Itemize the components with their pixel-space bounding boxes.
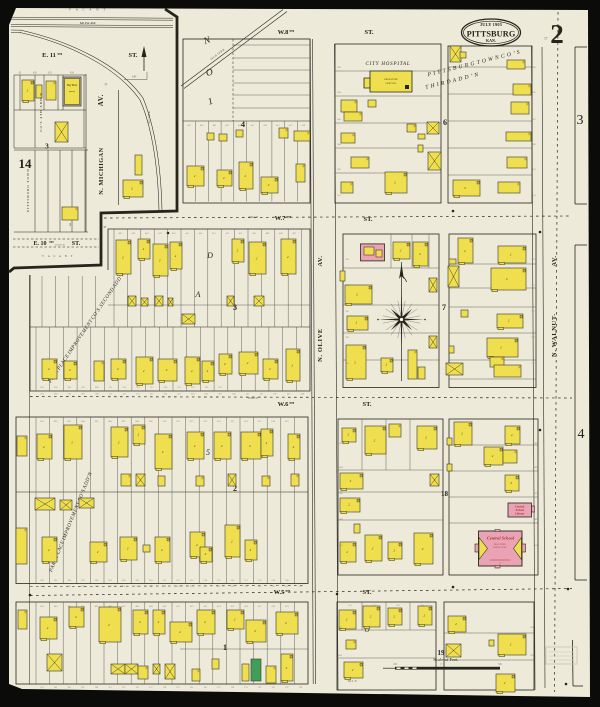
svg-text:TH: TH — [285, 589, 290, 593]
svg-text:W.8: W.8 — [278, 29, 290, 36]
svg-text:CO'S 4TH ADD'N: CO'S 4TH ADD'N — [39, 92, 43, 131]
svg-text:70′: 70′ — [104, 84, 108, 87]
svg-text:45′R.O.W: 45′R.O.W — [248, 397, 259, 400]
svg-text:ST.: ST. — [72, 241, 81, 247]
svg-text:T I L L ‘ D: T I L L ‘ D — [347, 680, 356, 683]
svg-text:ST.: ST. — [364, 29, 373, 36]
svg-text:HEAT. FURN.: HEAT. FURN. — [494, 543, 507, 546]
svg-text:N. OLIVE: N. OLIVE — [317, 328, 324, 362]
svg-text:TH: TH — [289, 29, 294, 33]
svg-text:Library: Library — [514, 512, 525, 516]
svg-text:4: 4 — [241, 120, 245, 129]
svg-text:AV.: AV. — [551, 255, 558, 266]
svg-text:TH: TH — [289, 401, 294, 405]
svg-text:6: 6 — [443, 118, 447, 127]
svg-text:140′: 140′ — [132, 76, 137, 79]
svg-text:W.5: W.5 — [274, 589, 286, 596]
svg-text:Mo.Pac.R.R.: Mo.Pac.R.R. — [79, 21, 96, 25]
svg-text:1: 1 — [223, 643, 227, 652]
svg-text:BRICK STONE: BRICK STONE — [384, 79, 398, 81]
svg-text:4: 4 — [578, 427, 585, 442]
svg-text:TH: TH — [286, 215, 291, 219]
svg-text:E. 10: E. 10 — [33, 241, 46, 247]
svg-text:K.C.S.R.R.: K.C.S.R.R. — [148, 110, 151, 123]
svg-text:Scale of Feet.: Scale of Feet. — [433, 657, 458, 662]
svg-text:ST.: ST. — [362, 401, 371, 408]
svg-text:PITTSBURG TOWN: PITTSBURG TOWN — [26, 168, 30, 211]
svg-text:(mow): (mow) — [69, 90, 75, 93]
svg-text:18: 18 — [441, 490, 449, 498]
svg-text:D: D — [206, 251, 213, 260]
svg-text:V A C A N T: V A C A N T — [69, 8, 107, 12]
svg-text:3: 3 — [45, 143, 49, 151]
svg-text:LIGHTS. ELEC.: LIGHTS. ELEC. — [493, 547, 508, 549]
svg-text:JULY 1905: JULY 1905 — [480, 22, 502, 27]
svg-text:A: A — [195, 290, 201, 299]
svg-text:V A C A N T: V A C A N T — [42, 254, 74, 258]
svg-text:TH: TH — [49, 240, 54, 244]
svg-text:7: 7 — [442, 303, 446, 312]
svg-text:W.6: W.6 — [278, 401, 290, 408]
svg-text:5: 5 — [206, 448, 210, 457]
svg-text:ST.: ST. — [362, 589, 371, 596]
svg-text:Hay Barn: Hay Barn — [67, 84, 78, 87]
svg-text:CITY HOSPITAL: CITY HOSPITAL — [366, 62, 411, 67]
svg-text:45′R.O.W: 45′R.O.W — [55, 244, 65, 247]
svg-text:W.7: W.7 — [275, 215, 287, 222]
svg-text:N. WALNUT-: N. WALNUT- — [551, 313, 558, 357]
svg-text:N. MICHIGAN: N. MICHIGAN — [98, 147, 105, 194]
svg-text:Central School: Central School — [487, 536, 515, 541]
svg-text:AV.: AV. — [97, 94, 105, 106]
svg-text:3: 3 — [69, 222, 71, 227]
svg-text:19: 19 — [438, 649, 446, 657]
svg-text:ST.: ST. — [128, 52, 137, 59]
svg-text:KAN.: KAN. — [486, 38, 496, 43]
svg-text:LIGHT CLR.: LIGHT CLR. — [386, 83, 397, 85]
svg-text:45′R.O.W: 45′R.O.W — [248, 216, 259, 219]
svg-text:30′: 30′ — [103, 226, 107, 229]
svg-text:ST.: ST. — [363, 216, 372, 223]
svg-text:2: 2 — [550, 19, 564, 49]
svg-text:3: 3 — [577, 113, 584, 128]
svg-text:☞: ☞ — [544, 37, 549, 42]
svg-text:E. 11: E. 11 — [42, 52, 56, 59]
svg-text:AV.: AV. — [317, 255, 324, 266]
svg-text:TH: TH — [57, 52, 62, 56]
